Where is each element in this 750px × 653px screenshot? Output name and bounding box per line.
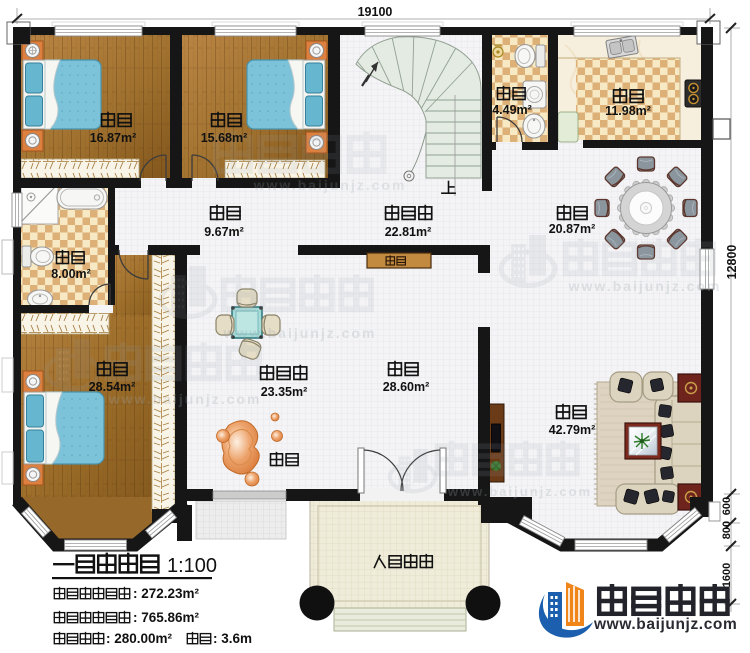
svg-text:www.baijunjz.com: www.baijunjz.com [593, 616, 737, 633]
svg-text:8.00m²: 8.00m² [51, 267, 91, 281]
svg-text:28.60m²: 28.60m² [383, 380, 430, 394]
svg-text:600: 600 [721, 497, 733, 515]
svg-text:16.87m²: 16.87m² [90, 131, 137, 145]
svg-text:15.68m²: 15.68m² [201, 131, 248, 145]
svg-text:20.87m²: 20.87m² [549, 222, 596, 236]
svg-text:19100: 19100 [358, 5, 393, 19]
svg-text:www.baijunjz.com: www.baijunjz.com [447, 484, 592, 499]
svg-text:: 765.86m²: : 765.86m² [133, 610, 200, 625]
svg-text:www.baijunjz.com: www.baijunjz.com [223, 325, 377, 341]
svg-text:11.98m²: 11.98m² [605, 104, 651, 118]
svg-text:42.79m²: 42.79m² [549, 423, 596, 437]
svg-text:: 3.6m: : 3.6m [213, 631, 252, 646]
svg-text:1600: 1600 [721, 563, 733, 587]
svg-text:1:100: 1:100 [167, 555, 217, 577]
svg-text:22.81m²: 22.81m² [385, 225, 432, 239]
svg-text:23.35m²: 23.35m² [261, 385, 308, 399]
svg-text:: 280.00m²: : 280.00m² [106, 631, 173, 646]
svg-text:4.49m²: 4.49m² [492, 103, 532, 117]
svg-text:800: 800 [721, 521, 733, 539]
svg-text:28.54m²: 28.54m² [89, 380, 136, 394]
svg-text:: 272.23m²: : 272.23m² [133, 586, 200, 601]
svg-text:www.baijunjz.com: www.baijunjz.com [253, 177, 407, 193]
svg-text:www.baijunjz.com: www.baijunjz.com [568, 278, 722, 294]
svg-text:12800: 12800 [725, 245, 739, 280]
svg-text:9.67m²: 9.67m² [204, 225, 244, 239]
